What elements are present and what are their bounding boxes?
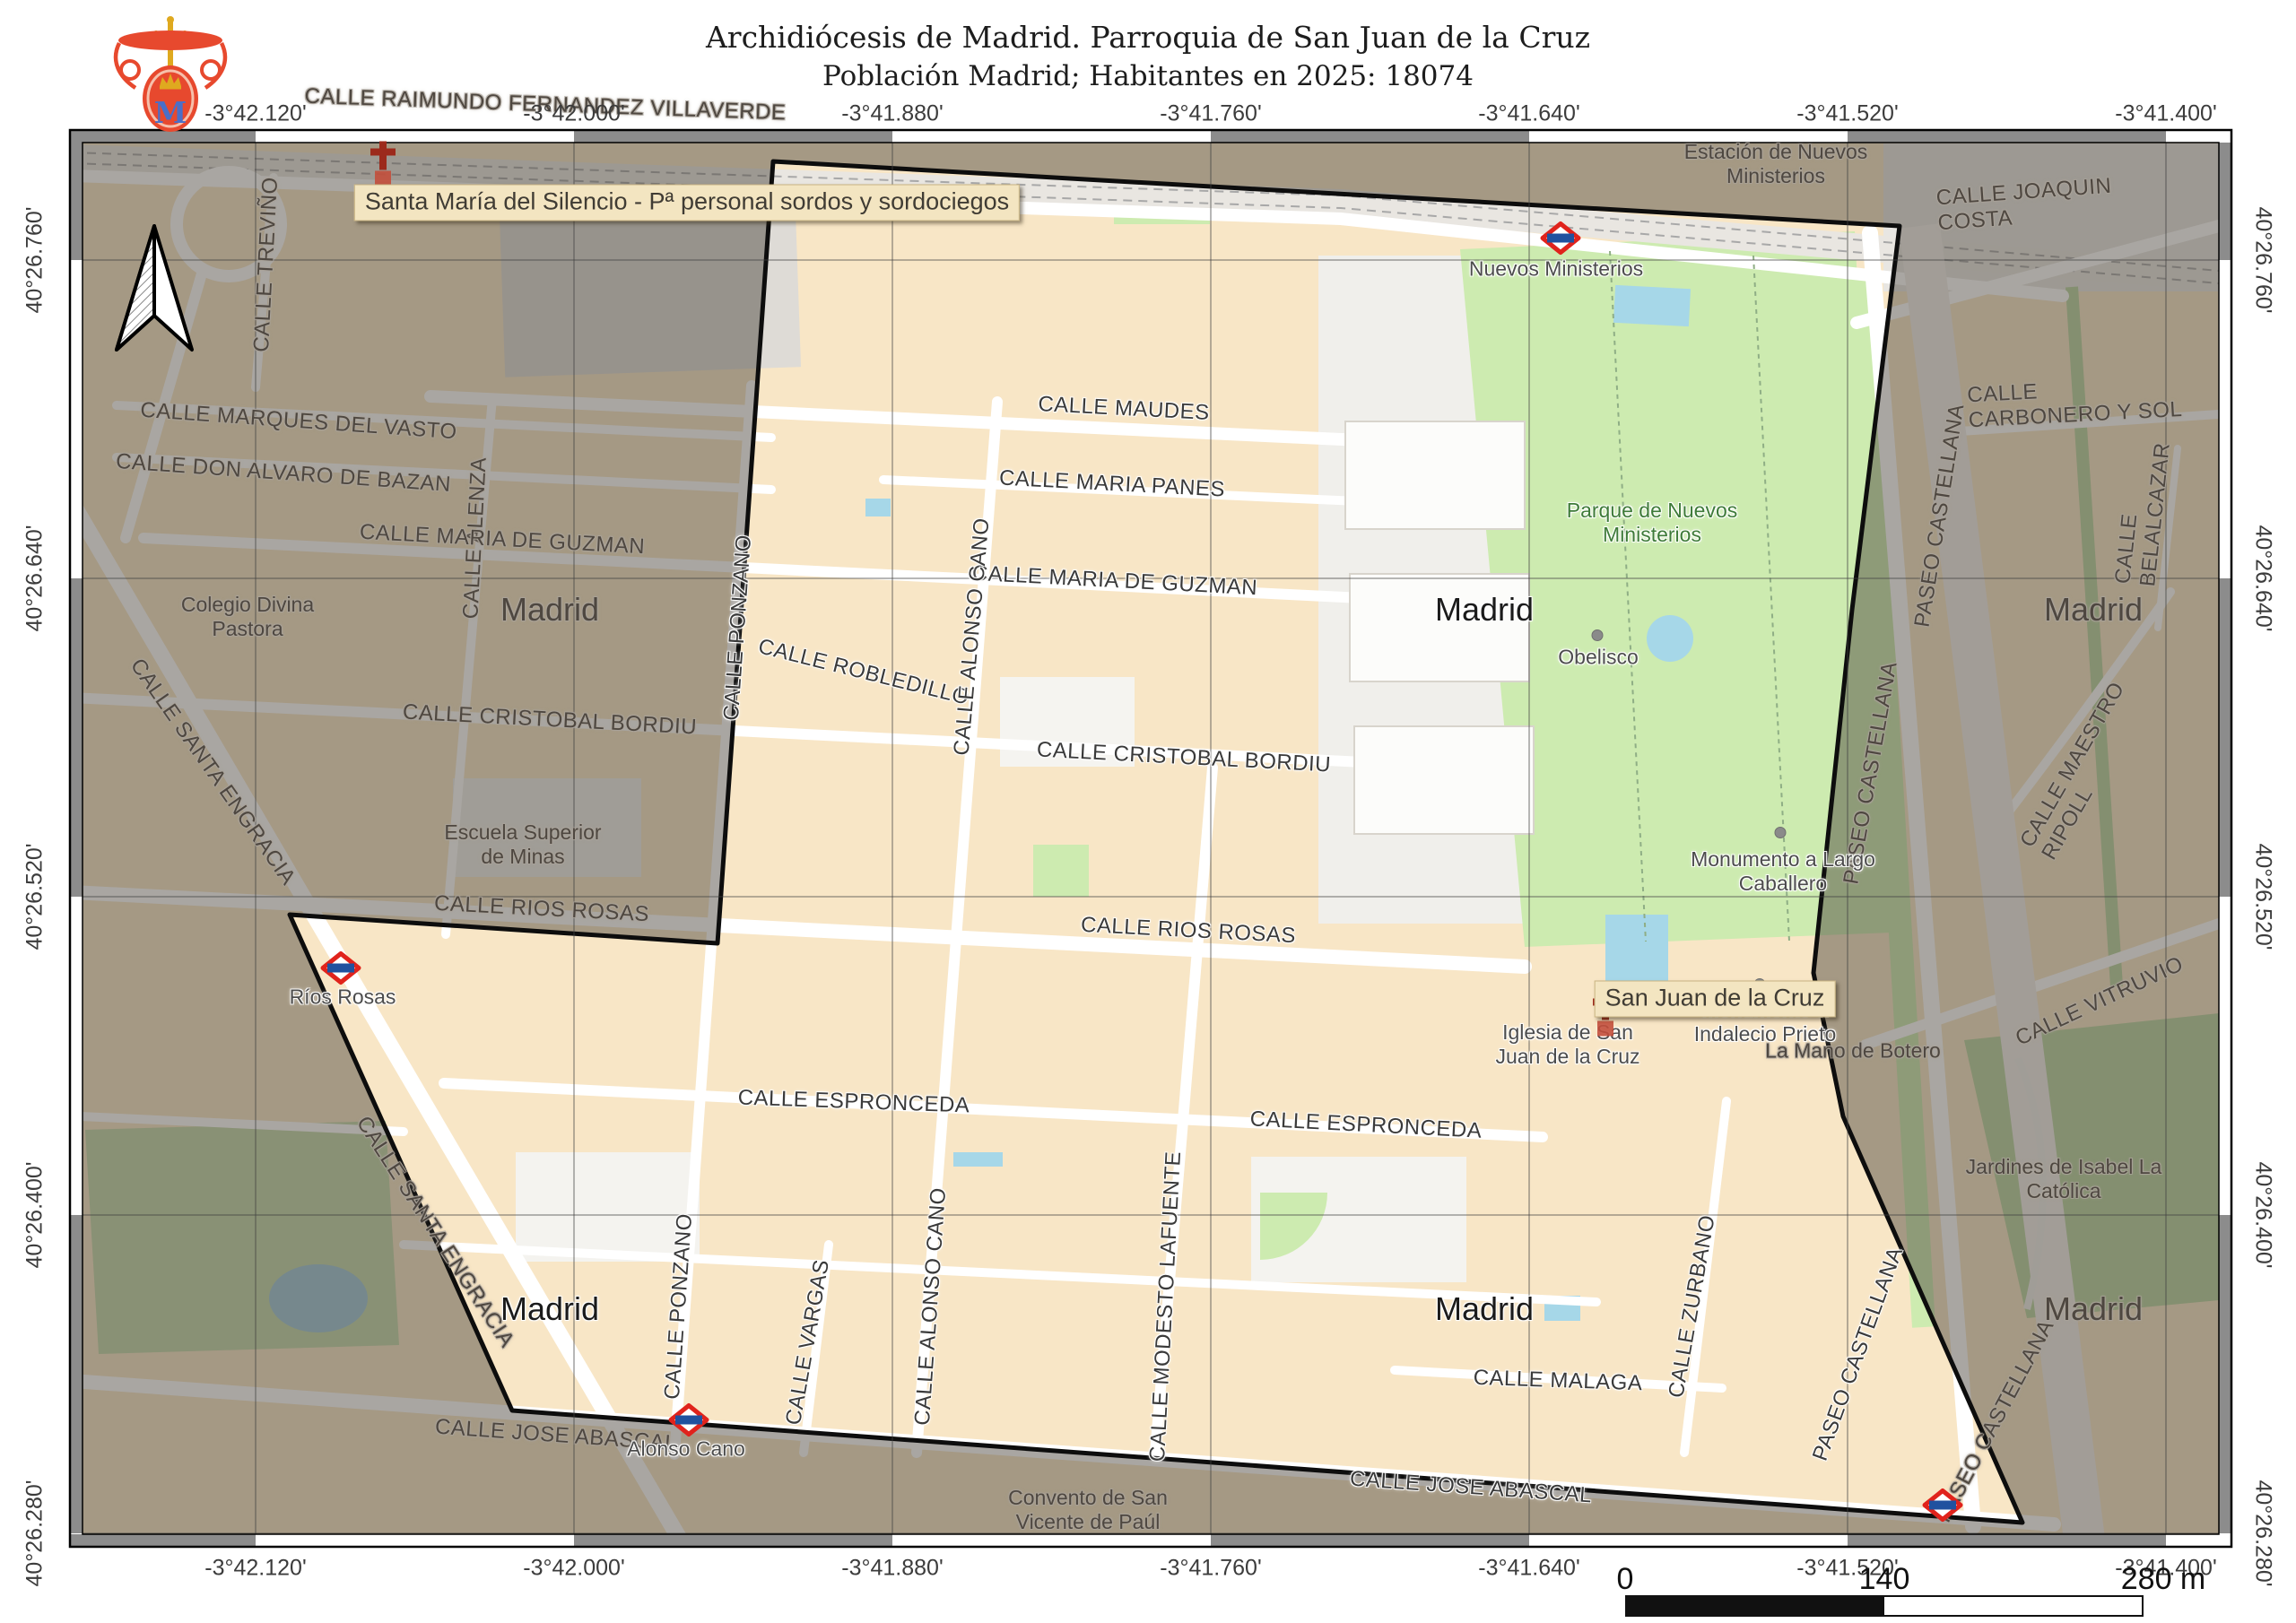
map-title-block: Archidiócesis de Madrid. Parroquia de Sa… xyxy=(0,0,2296,92)
map-canvas xyxy=(0,0,2296,1623)
svg-text:M: M xyxy=(154,95,187,130)
shield-icon: M xyxy=(143,65,198,132)
scale-bar-rect xyxy=(1625,1595,2144,1617)
map-title: Archidiócesis de Madrid. Parroquia de Sa… xyxy=(0,20,2296,55)
scale-mid: 140 xyxy=(1859,1562,1910,1597)
scale-end: 280 m xyxy=(2121,1562,2206,1597)
map-subtitle: Población Madrid; Habitantes en 2025: 18… xyxy=(0,60,2296,92)
archdiocese-coat-of-arms-logo: M xyxy=(85,7,256,137)
scale-start: 0 xyxy=(1617,1562,1634,1597)
map-export-page: M Archidiócesis de Madrid. Parroquia de … xyxy=(0,0,2296,1623)
basemap-geometry xyxy=(72,143,2219,1547)
